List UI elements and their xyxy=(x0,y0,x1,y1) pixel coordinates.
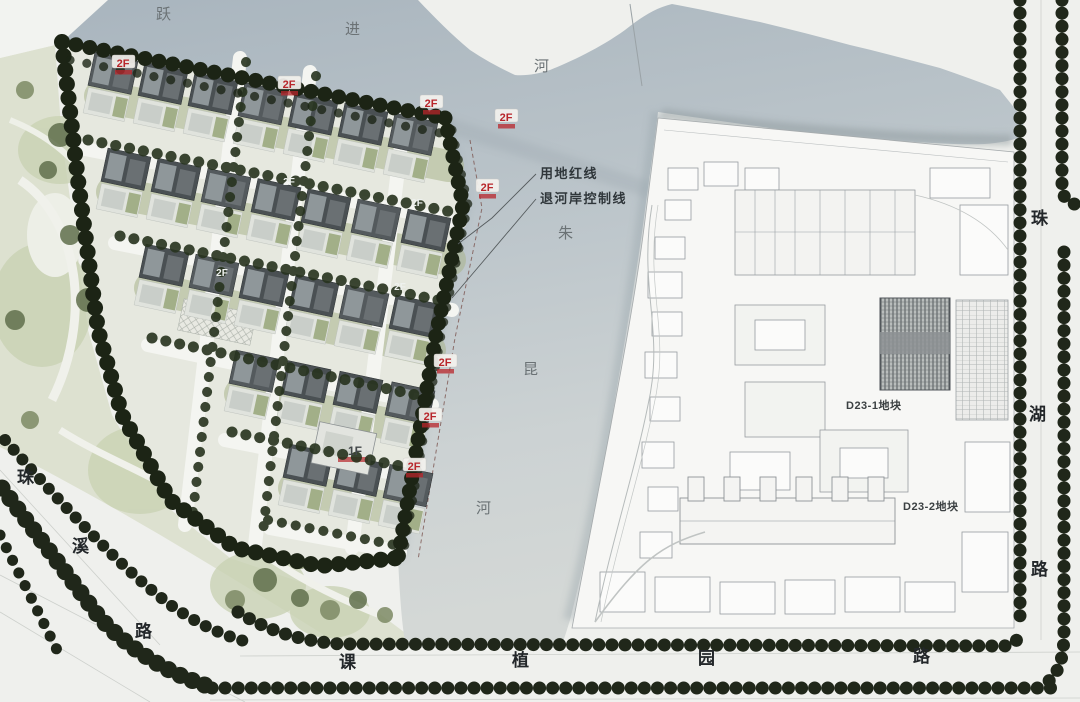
floor-label: 2F xyxy=(495,109,518,129)
floor-label: 2F xyxy=(420,95,443,115)
road-zhuhu-char-1: 珠 xyxy=(1031,209,1049,228)
svg-text:2F: 2F xyxy=(425,98,438,110)
river-yuejin-char-2: 进 xyxy=(345,21,360,38)
master-plan-page: 跃 进 河 朱 昆 河 用地红线 退河岸控制线 D23-1地块 D23-2地块 … xyxy=(0,0,1080,702)
svg-text:2F: 2F xyxy=(481,182,494,194)
floor-label: 2F xyxy=(434,354,457,374)
svg-text:2F: 2F xyxy=(216,268,228,279)
river-zhukun-char-3: 河 xyxy=(476,500,491,517)
road-kezhiyuan-char-1: 课 xyxy=(339,653,357,672)
park-tree xyxy=(16,81,34,99)
floor-label: 2F xyxy=(394,282,406,293)
svg-text:2F: 2F xyxy=(394,282,406,293)
svg-text:2F: 2F xyxy=(439,357,452,369)
road-zhuhu-char-3: 路 xyxy=(1031,559,1049,579)
park-tree xyxy=(291,589,309,607)
svg-text:2F: 2F xyxy=(283,79,296,91)
road-kezhiyuan-char-2: 植 xyxy=(512,650,529,670)
floor-label: 2F xyxy=(403,458,426,478)
park-tree xyxy=(377,607,393,623)
svg-text:1F: 1F xyxy=(348,444,362,458)
parcel-d23-2-label: D23-2地块 xyxy=(903,499,959,513)
park-tree xyxy=(5,310,25,330)
road-kezhiyuan-char-4: 路 xyxy=(913,646,931,666)
park-tree xyxy=(21,411,39,429)
riverbank-setback-label: 退河岸控制线 xyxy=(540,191,627,206)
river-zhukun-char-2: 昆 xyxy=(523,362,538,378)
svg-text:2F: 2F xyxy=(424,411,437,423)
park-tree xyxy=(39,161,57,179)
svg-text:2F: 2F xyxy=(117,58,130,70)
road-kezhiyuan-char-3: 园 xyxy=(698,649,715,668)
road-zhuxi-char-1: 珠 xyxy=(17,468,35,487)
floor-label: 2F xyxy=(419,408,442,428)
river-yuejin-char-1: 跃 xyxy=(156,6,171,23)
river-zhukun-char-1: 朱 xyxy=(558,225,573,242)
svg-text:2F: 2F xyxy=(411,198,423,209)
master-plan-svg: 跃 进 河 朱 昆 河 用地红线 退河岸控制线 D23-1地块 D23-2地块 … xyxy=(0,0,1080,702)
parcel-d23-1-label: D23-1地块 xyxy=(846,398,902,412)
road-zhuxi-char-3: 路 xyxy=(135,621,153,641)
svg-text:2F: 2F xyxy=(283,177,295,188)
floor-label: 2F xyxy=(112,55,135,75)
svg-text:2F: 2F xyxy=(408,461,421,473)
floor-label: 2F xyxy=(283,177,295,188)
park-tree xyxy=(320,600,340,620)
svg-text:2F: 2F xyxy=(500,112,513,124)
floor-label: 2F xyxy=(411,198,423,209)
road-zhuhu-char-2: 湖 xyxy=(1029,405,1046,424)
floor-label: 2F xyxy=(476,179,499,199)
park-tree xyxy=(349,591,367,609)
floor-label: 2F xyxy=(216,268,228,279)
road-zhuxi-char-2: 溪 xyxy=(72,537,90,556)
river-yuejin-char-3: 河 xyxy=(534,58,549,75)
park-tree xyxy=(253,568,277,592)
floor-label: 2F xyxy=(278,76,301,96)
land-red-line-label: 用地红线 xyxy=(539,166,598,181)
floor-label: 1F xyxy=(348,444,362,458)
